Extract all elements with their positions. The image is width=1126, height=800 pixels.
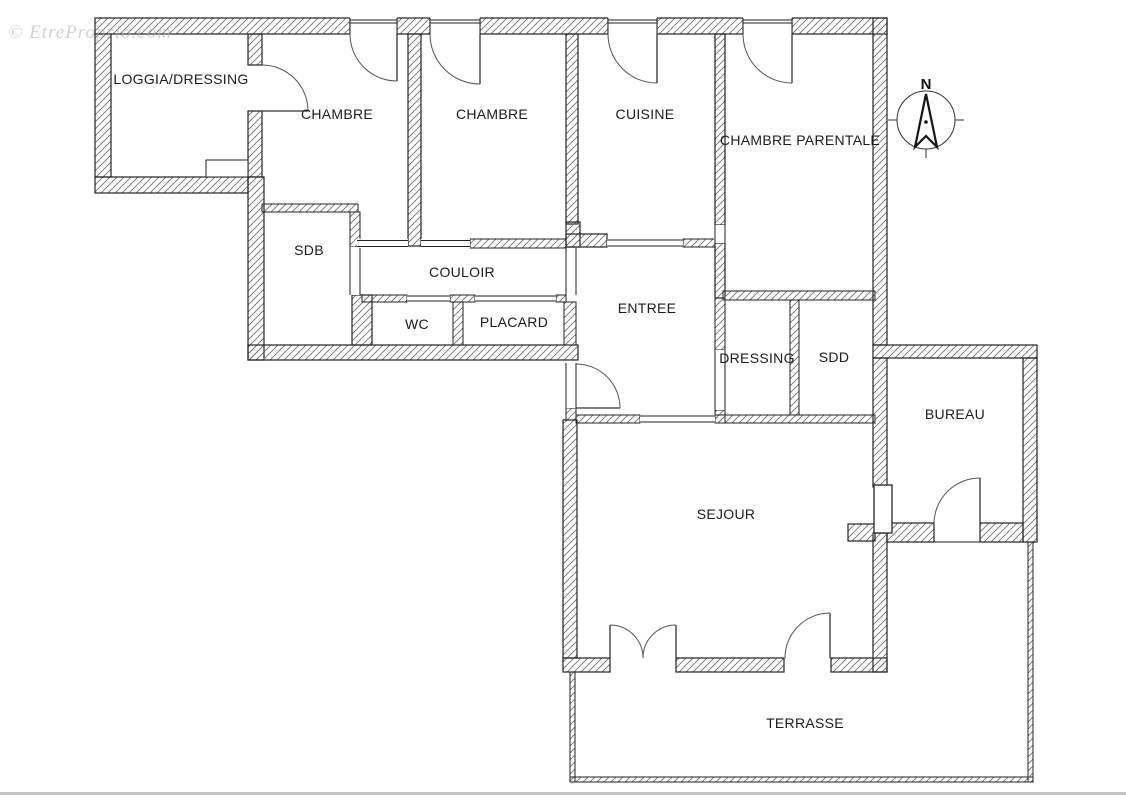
room-label-cuisine: CUISINE	[616, 106, 675, 122]
room-label-chambre-1: CHAMBRE	[301, 106, 373, 122]
passage-cuisine-entree	[607, 239, 683, 247]
room-label-dressing: DRESSING	[719, 350, 795, 366]
compass-center-dot	[924, 120, 928, 124]
room-label-sdb: SDB	[294, 242, 324, 258]
double-door-sejour-terrasse	[610, 625, 676, 672]
compass-north-label: N	[921, 76, 932, 93]
doors	[262, 65, 980, 672]
door-sejour-terrasse	[784, 613, 831, 672]
door-opening-placard	[475, 295, 556, 302]
room-label-bureau: BUREAU	[925, 406, 985, 422]
room-label-chambre-parentale: CHAMBRE PARENTALE	[720, 132, 880, 148]
room-label-sejour: SEJOUR	[697, 506, 756, 522]
door-loggia-chambre	[262, 65, 308, 111]
room-label-placard: PLACARD	[480, 314, 548, 330]
door-opening-chambre-parentale	[714, 225, 726, 243]
room-label-entree: ENTREE	[618, 300, 677, 316]
passage-entree-sejour	[640, 415, 715, 423]
room-label-loggia-dressing: LOGGIA/DRESSING	[113, 71, 248, 87]
door-opening-sdb	[350, 247, 360, 295]
floor-plan-drawing: N LOGGIA/DRESSING CHAMBRE CHAMBRE CUISIN…	[0, 0, 1126, 800]
door-opening-wc	[407, 295, 450, 302]
window-chambre-parentale	[743, 17, 792, 83]
floor-plan: © EtreProprio.com	[0, 0, 1126, 800]
door-opening-chambre-1	[357, 239, 408, 248]
room-label-wc: WC	[405, 316, 429, 332]
entry-door	[565, 363, 620, 408]
page-bottom-border	[0, 792, 1126, 795]
window-cuisine	[608, 17, 657, 83]
room-label-terrasse: TERRASSE	[766, 715, 844, 731]
door-bureau	[934, 478, 980, 542]
room-label-couloir: COULOIR	[429, 264, 495, 280]
room-label-chambre-2: CHAMBRE	[456, 106, 528, 122]
window-sejour-bureau	[874, 485, 892, 533]
window-chambre-1	[350, 17, 397, 81]
loggia-step	[206, 160, 248, 177]
compass-north-indicator: N	[888, 76, 964, 158]
passage-couloir-entree	[566, 248, 576, 295]
door-opening-chambre-2	[421, 239, 470, 248]
room-label-sdd: SDD	[819, 349, 849, 365]
window-chambre-2	[430, 17, 480, 84]
